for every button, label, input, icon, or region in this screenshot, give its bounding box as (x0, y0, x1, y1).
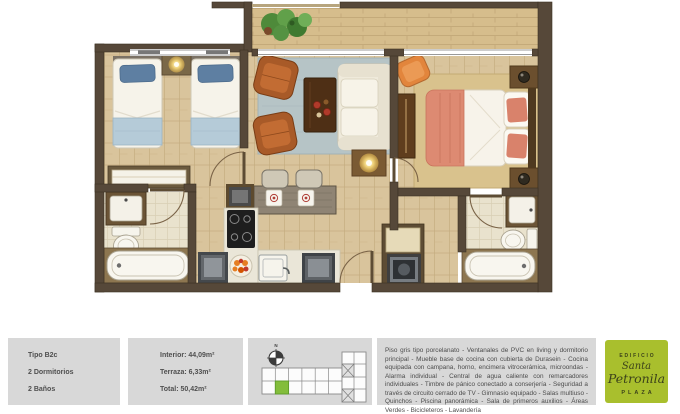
windows (130, 49, 532, 56)
north-label: N (274, 343, 277, 348)
wall-living-master-b (390, 182, 398, 230)
highlighted-unit (275, 381, 288, 394)
unit-type-card: Tipo B2c 2 Dormitorios 2 Baños (8, 338, 120, 405)
dishwasher (302, 253, 335, 283)
logo-name-line2: Petronila (608, 373, 665, 386)
twin-bed (191, 56, 240, 148)
master-bedroom (394, 53, 538, 190)
bathtub (462, 249, 538, 283)
bedroom2-window (130, 49, 230, 56)
cooktop (227, 210, 255, 248)
wall-bath2-left (458, 196, 466, 252)
kitchen-sink (259, 255, 289, 281)
bar-stool (296, 170, 322, 188)
dresser (397, 94, 415, 158)
wall-window-stub (532, 49, 538, 56)
wall-living-master (390, 52, 398, 158)
description-card: Piso gris tipo porcelanato - Ventanales … (377, 338, 596, 405)
wall-window-stub (252, 49, 258, 56)
fruit-bowl (230, 255, 252, 277)
vanity-sink (506, 194, 538, 227)
wall-right (538, 2, 552, 292)
logo-card: EDIFICIO Santa Petronila PLAZA (605, 340, 668, 403)
coffee-table (304, 78, 336, 132)
wall-bedroom2-living (240, 50, 248, 148)
logo-edificio-label: EDIFICIO (618, 353, 656, 359)
living-window (258, 49, 384, 56)
amenities-description: Piso gris tipo porcelanato - Ventanales … (377, 338, 596, 414)
terrace-area: Terraza: 6,33m² (160, 369, 243, 376)
refrigerator (198, 252, 228, 283)
wall-bath1-right (188, 192, 196, 283)
wall-bottom-right (372, 283, 538, 292)
bathrooms-label: 2 Baños (28, 386, 120, 393)
master-window (404, 49, 532, 56)
key-plan: N (248, 338, 372, 405)
vanity-sink (106, 192, 146, 225)
wall-left (95, 44, 104, 292)
bedrooms-label: 2 Dormitorios (28, 369, 120, 376)
oven-tower (226, 184, 254, 209)
lamp-icon (519, 72, 530, 83)
sofa (338, 64, 392, 150)
interior-area: Interior: 44,09m² (160, 352, 243, 359)
cabinet (386, 228, 420, 252)
north-compass-icon: N (267, 343, 285, 367)
armchair (252, 111, 299, 157)
side-table-lamp (352, 150, 386, 176)
bathtub (104, 248, 192, 283)
wall-bottom-left (95, 283, 340, 292)
washing-machine (387, 254, 421, 285)
wall-bath1-top-b (184, 184, 196, 192)
wall-window-stub (384, 49, 404, 56)
toilet (501, 229, 537, 252)
logo-plaza-label: PLAZA (618, 390, 654, 396)
floor-plan (0, 0, 680, 330)
areas-card: Interior: 44,09m² Terraza: 6,33m² Total:… (128, 338, 243, 405)
brochure-page: Tipo B2c 2 Dormitorios 2 Baños Interior:… (0, 0, 680, 414)
wall-master-bottom-a (398, 188, 470, 196)
wall-terrace-left (244, 2, 252, 52)
lamp-icon (519, 174, 530, 185)
key-plan-card: N (248, 338, 372, 405)
total-area: Total: 50,42m² (160, 386, 243, 393)
wall-master-bottom-b (502, 188, 538, 196)
wall-terrace-top (340, 2, 538, 8)
nightstand (510, 66, 538, 88)
wall-bath1-top-a (95, 184, 148, 192)
nightstand (510, 168, 538, 190)
bar-stool (262, 170, 288, 188)
unit-type-label: Tipo B2c (28, 352, 120, 359)
twin-bed (113, 56, 162, 148)
laundry-closet (382, 224, 424, 288)
terrace-edge (252, 4, 340, 7)
bar-counter (254, 186, 336, 214)
